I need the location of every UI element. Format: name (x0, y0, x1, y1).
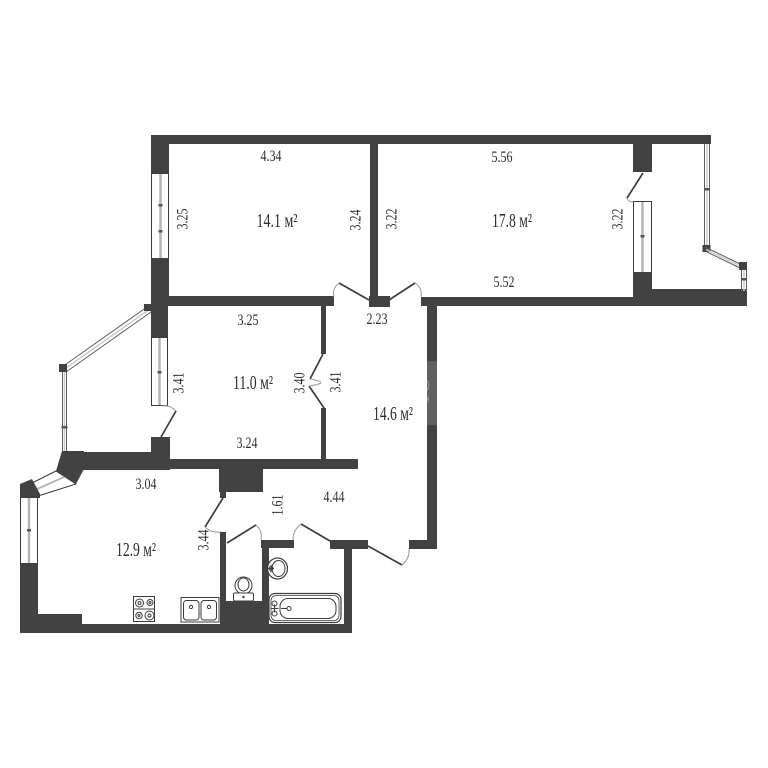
svg-text:2.23: 2.23 (367, 311, 388, 328)
svg-text:3.24: 3.24 (348, 210, 365, 231)
svg-text:Ю: Ю (406, 377, 435, 404)
svg-text:17.8 м²: 17.8 м² (492, 210, 532, 232)
svg-text:1.61: 1.61 (270, 495, 287, 516)
svg-text:12.9 м²: 12.9 м² (116, 539, 156, 561)
svg-text:3.41: 3.41 (171, 373, 188, 394)
svg-text:4.34: 4.34 (261, 148, 282, 165)
svg-text:3.25: 3.25 (238, 312, 259, 329)
svg-text:3.22: 3.22 (384, 209, 401, 230)
svg-text:3.22: 3.22 (610, 209, 627, 230)
svg-text:11.0 м²: 11.0 м² (233, 372, 273, 394)
svg-text:3.44: 3.44 (196, 530, 213, 551)
svg-text:3.25: 3.25 (175, 209, 192, 230)
svg-text:14.1 м²: 14.1 м² (257, 210, 298, 232)
svg-text:4.44: 4.44 (324, 489, 345, 506)
svg-text:3.04: 3.04 (136, 476, 157, 493)
svg-text:14.6 м²: 14.6 м² (373, 403, 413, 425)
svg-text:5.56: 5.56 (492, 149, 513, 166)
svg-text:3.24: 3.24 (237, 435, 258, 452)
svg-text:3.40: 3.40 (292, 373, 309, 394)
svg-text:5.52: 5.52 (494, 274, 515, 291)
svg-text:3.41: 3.41 (328, 372, 345, 393)
